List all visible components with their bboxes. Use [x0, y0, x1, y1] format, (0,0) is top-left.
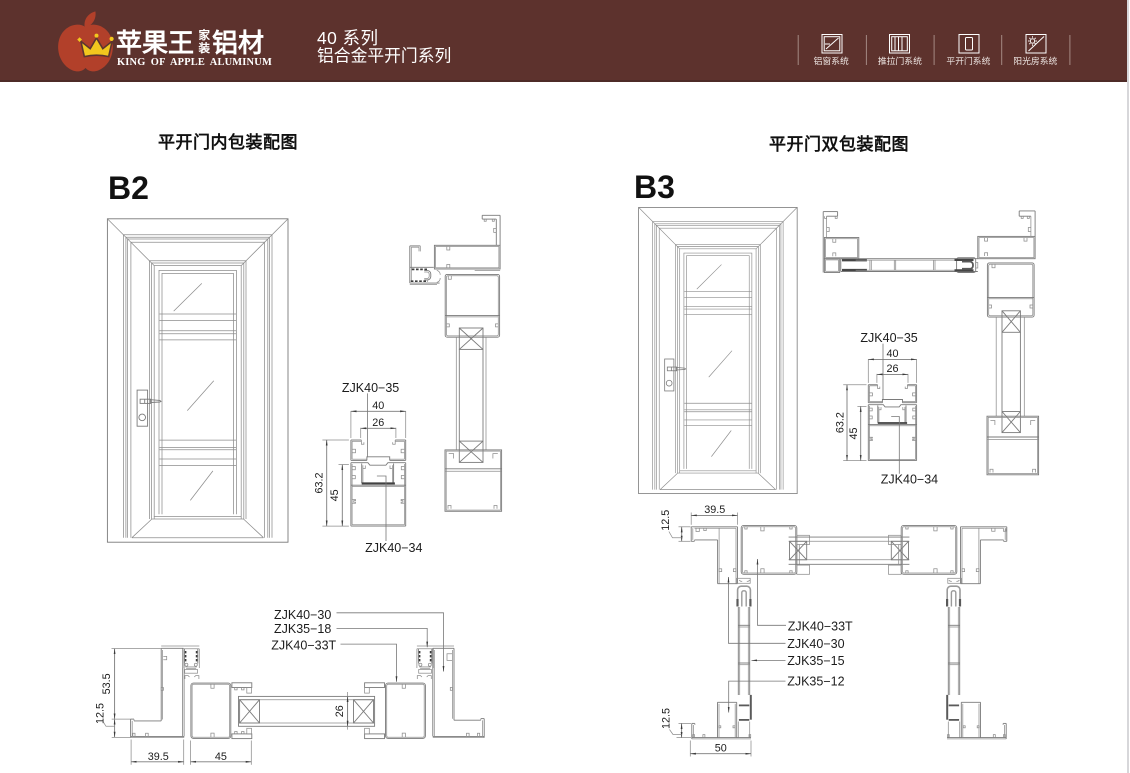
svg-text:ZJK40−34: ZJK40−34 — [881, 473, 938, 487]
svg-text:ZJK40−35: ZJK40−35 — [342, 381, 399, 395]
svg-text:ZJK40−35: ZJK40−35 — [860, 331, 917, 345]
svg-text:ZJK35−12: ZJK35−12 — [787, 675, 844, 689]
svg-text:40: 40 — [372, 400, 384, 412]
svg-text:ZJK40−34: ZJK40−34 — [365, 541, 422, 555]
svg-text:40: 40 — [886, 348, 898, 360]
svg-text:53.5: 53.5 — [101, 673, 113, 694]
svg-text:39.5: 39.5 — [704, 504, 725, 516]
svg-text:ZJK40−30: ZJK40−30 — [787, 637, 844, 651]
svg-text:ZJK35−15: ZJK35−15 — [787, 654, 844, 668]
svg-text:63.2: 63.2 — [834, 412, 846, 433]
svg-text:ZJK40−33T: ZJK40−33T — [788, 619, 853, 633]
svg-text:26: 26 — [372, 417, 384, 429]
svg-text:63.2: 63.2 — [314, 473, 326, 494]
svg-text:ZJK35−18: ZJK35−18 — [274, 622, 331, 636]
svg-text:45: 45 — [215, 751, 227, 763]
svg-text:45: 45 — [329, 489, 341, 501]
svg-text:12.5: 12.5 — [661, 708, 673, 729]
svg-text:39.5: 39.5 — [148, 751, 169, 763]
svg-text:12.5: 12.5 — [660, 510, 672, 531]
svg-text:12.5: 12.5 — [94, 703, 106, 724]
svg-text:ZJK40−30: ZJK40−30 — [274, 608, 331, 622]
svg-text:26: 26 — [886, 363, 898, 375]
svg-text:50: 50 — [715, 743, 727, 755]
svg-text:26: 26 — [334, 705, 346, 717]
svg-text:ZJK40−33T: ZJK40−33T — [271, 638, 336, 652]
svg-text:45: 45 — [848, 427, 860, 439]
